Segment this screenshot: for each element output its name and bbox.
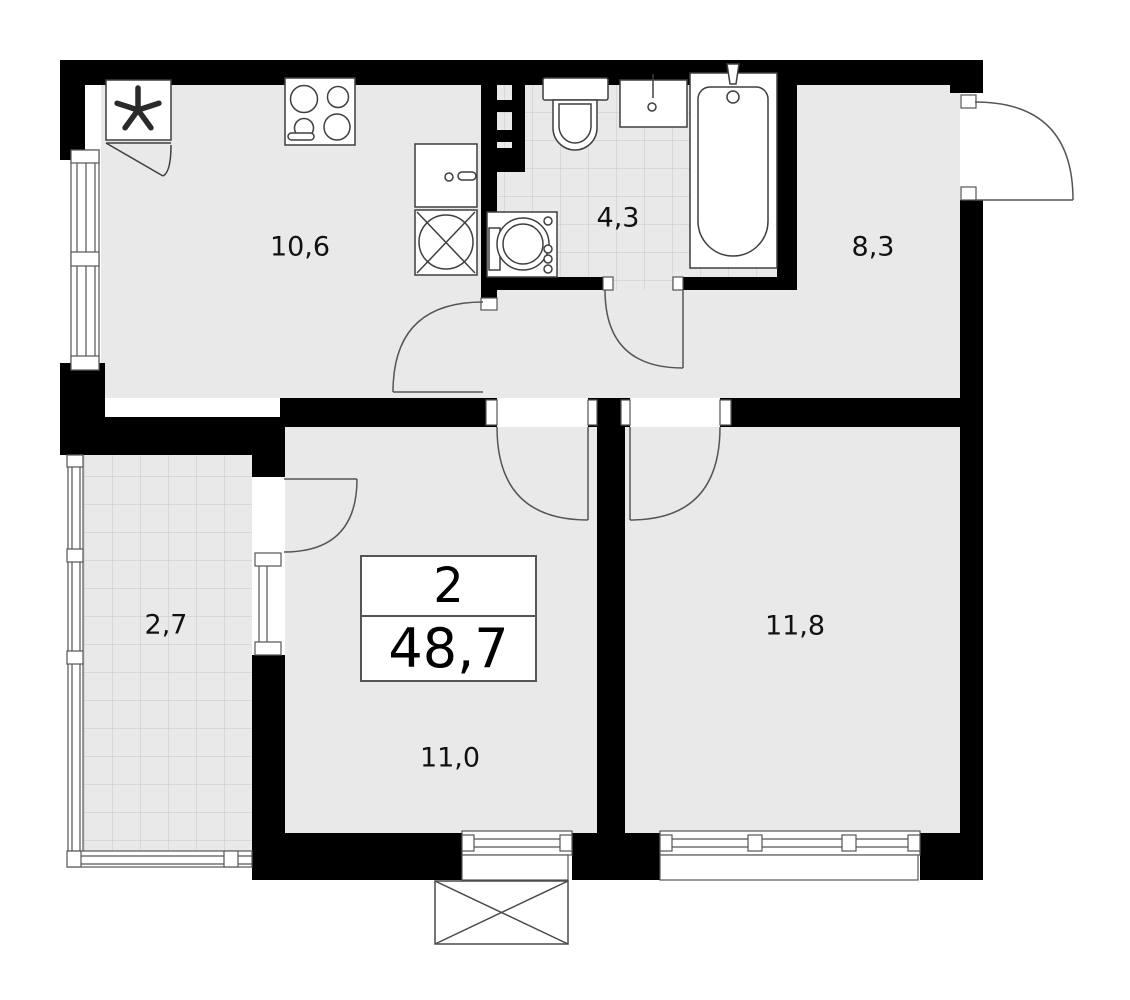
ac-unit-icon: [435, 881, 568, 944]
floor-plan-drawing: [0, 0, 1130, 1000]
room-label-kitchen: 10,6: [270, 232, 330, 263]
room-label-living-room: 11,0: [420, 743, 480, 774]
balcony-window: [252, 477, 285, 655]
room-label-bedroom: 11,8: [765, 611, 825, 642]
living-room-window: [462, 831, 572, 880]
washing-machine-icon: [487, 212, 557, 277]
room-label-hallway: 8,3: [852, 232, 895, 263]
dishwasher-icon: [415, 210, 477, 275]
floors: [83, 85, 960, 853]
entrance-door-jambs: [961, 95, 976, 200]
bedroom-window: [660, 831, 920, 880]
stove-icon: [285, 78, 355, 145]
rooms-count: 2: [362, 557, 535, 617]
kitchen-sink-icon: [415, 144, 477, 207]
entrance-door: [975, 102, 1073, 200]
kitchen-window: [71, 150, 99, 370]
apartment-info-box: 2 48,7: [360, 555, 537, 682]
room-label-bathroom: 4,3: [597, 203, 640, 234]
total-area: 48,7: [362, 617, 535, 680]
balcony-floor: [83, 455, 252, 853]
washbasin-icon: [620, 74, 687, 127]
floor-plan: 10,6 4,3 8,3 2,7 11,0 11,8 2 48,7: [0, 0, 1130, 1000]
bathtub-icon: [690, 64, 777, 268]
room-label-balcony: 2,7: [145, 610, 188, 641]
